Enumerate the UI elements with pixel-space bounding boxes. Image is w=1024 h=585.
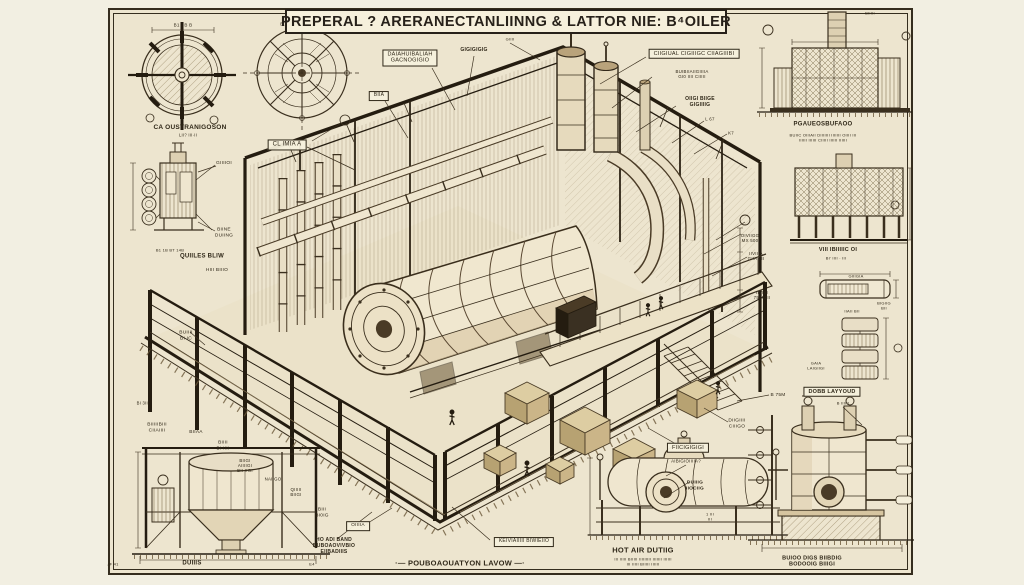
blueprint-poster: PREPERAL ? ARERANECTANLIINNG & LATTOR NI… bbox=[0, 0, 1024, 585]
fan-section-circle-a bbox=[128, 22, 236, 130]
right-top-furnace-elevation bbox=[757, 12, 912, 115]
sheet-title: PREPERAL ? ARERANECTANLIINNG & LATTOR NI… bbox=[285, 9, 727, 34]
bottom-left-hopper bbox=[132, 448, 330, 564]
duct-detail bbox=[820, 271, 899, 298]
bottom-right-vertical-boiler bbox=[748, 396, 914, 552]
blueprint-drawing bbox=[0, 0, 1024, 585]
stacked-module-detail bbox=[842, 318, 902, 379]
left-tank-detail bbox=[130, 143, 215, 230]
right-mid-furnace-elevation bbox=[790, 154, 913, 243]
